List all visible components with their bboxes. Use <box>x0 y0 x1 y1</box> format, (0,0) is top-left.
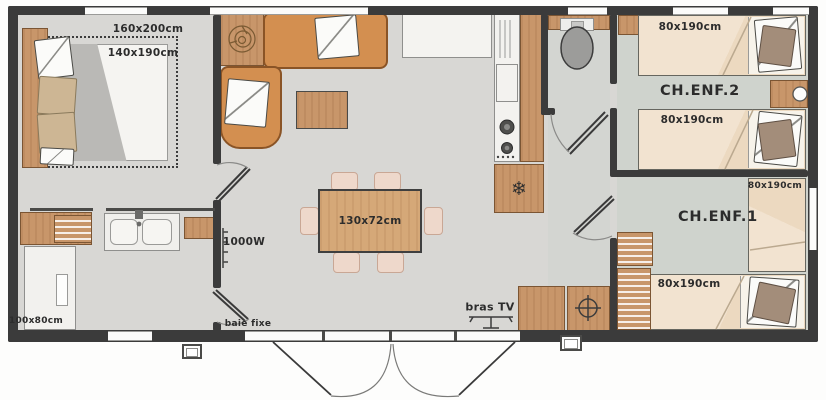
window <box>210 7 368 15</box>
wardrobe-bedroom1 <box>617 268 651 330</box>
outer-wall-left <box>8 6 18 342</box>
pillow <box>40 147 75 166</box>
wall-segment <box>213 15 221 164</box>
nightstand <box>770 80 808 108</box>
sink-basin <box>110 219 138 245</box>
label-room1: CH.ENF.1 <box>678 209 758 225</box>
window <box>809 188 817 250</box>
kitchen-cabinet <box>496 64 518 102</box>
outer-wall-right <box>808 6 818 342</box>
bathroom-side-cabinet <box>184 217 216 239</box>
dresser-bedroom1 <box>617 232 653 266</box>
snowflake-icon: ❄ <box>511 178 527 200</box>
wall-segment <box>213 200 221 288</box>
label-bed-r2-top: 80x190cm <box>659 21 722 33</box>
window <box>773 7 809 15</box>
sofa-pillow <box>224 78 270 127</box>
coffee-table <box>296 91 348 129</box>
window <box>568 7 607 15</box>
wall-segment <box>541 108 555 115</box>
bed-r1-right <box>748 178 806 272</box>
wall-segment <box>610 238 617 332</box>
wall-segment <box>610 108 617 176</box>
glazed-bay <box>245 331 520 341</box>
pillow <box>37 76 78 117</box>
label-master-zone: 160x200cm <box>113 23 183 35</box>
wall-segment <box>541 14 548 115</box>
cushion <box>758 119 797 161</box>
label-fixed-bay: baie fixe <box>225 319 271 329</box>
window <box>85 7 147 15</box>
corner-side-table <box>220 12 264 66</box>
label-bed-r1-bottom: 80x190cm <box>658 278 721 290</box>
wall-segment <box>30 208 93 211</box>
bathroom-drawers <box>54 215 92 243</box>
entrance-step <box>560 335 582 351</box>
water-heater-cabinet <box>567 286 610 331</box>
entrance-step <box>182 344 202 359</box>
label-shower: 100x80cm <box>9 316 63 326</box>
dining-chair <box>333 252 360 273</box>
wall-divider-bedrooms <box>610 170 808 177</box>
label-heater: 1000W <box>223 236 265 248</box>
cushion <box>752 281 797 324</box>
wall-segment <box>610 14 617 84</box>
bay-mullion <box>389 331 392 341</box>
window-bathroom <box>108 331 152 341</box>
label-bed-r2-bottom: 80x190cm <box>661 114 724 126</box>
bay-mullion <box>322 331 325 341</box>
label-dining-table: 130x72cm <box>339 215 402 227</box>
wall-segment <box>106 208 215 211</box>
pillow <box>34 36 75 80</box>
label-tv-arm: bras TV <box>465 301 514 314</box>
french-doors <box>273 342 515 397</box>
shower-step <box>56 274 68 306</box>
cistern-badge <box>571 21 584 28</box>
dining-chair <box>300 207 319 235</box>
label-room2: CH.ENF.2 <box>660 83 740 99</box>
dining-chair <box>377 252 404 273</box>
window <box>673 7 728 15</box>
label-master-bed: 140x190cm <box>108 47 178 59</box>
label-bed-r1-right: 80x190cm <box>748 181 802 191</box>
kitchen-counter-white <box>402 12 492 58</box>
tv-cabinet <box>518 286 565 331</box>
dining-chair <box>424 207 443 235</box>
cushion <box>758 25 797 67</box>
bay-mullion <box>454 331 457 341</box>
floorplan-canvas: ❄ <box>0 0 826 400</box>
sink-basin <box>142 219 172 245</box>
floor-hallway <box>548 15 610 330</box>
sofa-pillow <box>314 14 360 60</box>
